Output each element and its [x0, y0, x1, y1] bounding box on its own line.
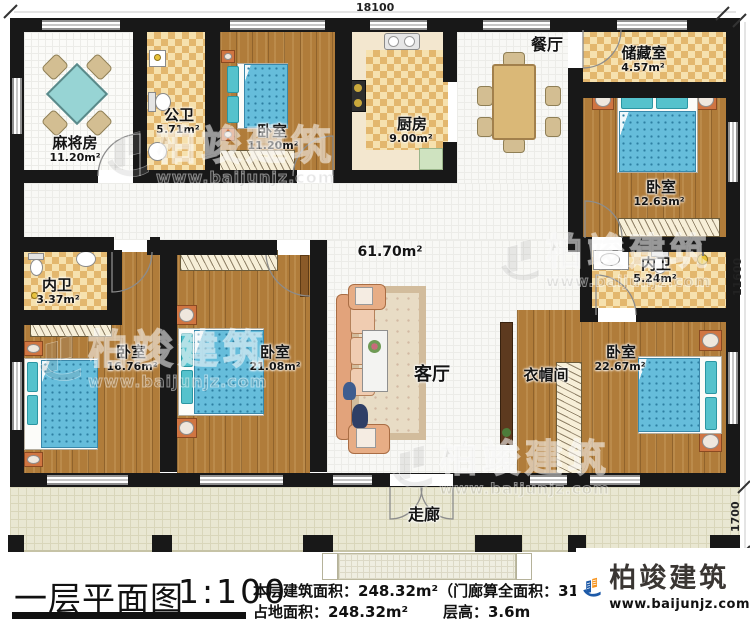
- window: [47, 475, 128, 485]
- label-bath-w: 内卫: [42, 278, 72, 293]
- bed-pillow: [705, 361, 717, 394]
- toilet-icon: [30, 259, 43, 276]
- dining-chair: [545, 117, 561, 137]
- company-logo: 柏竣建筑 www.baijunjz.com: [576, 548, 750, 627]
- wall: [310, 240, 327, 472]
- wardrobe-icon: [618, 218, 720, 237]
- counter-board: [419, 148, 443, 170]
- nightstand: [699, 431, 722, 452]
- nightstand: [699, 330, 722, 351]
- dining-chair: [477, 117, 493, 137]
- stats-building-area: 本层建筑面积：248.32m²（门廊算全面积：31.1: [253, 580, 583, 601]
- label-bath-w-area: 3.37m²: [36, 294, 79, 305]
- floor-plan-page: 麻将房 11.20m² 公卫 5.71m² 卧室 11.20m² 厨房 9.00…: [0, 0, 750, 627]
- stove-burner: [354, 84, 362, 92]
- wall: [592, 308, 598, 322]
- wall: [580, 237, 592, 322]
- window: [483, 20, 550, 30]
- window: [728, 352, 738, 424]
- window: [12, 78, 22, 134]
- entry-door-gap: [390, 474, 453, 486]
- wall: [568, 18, 583, 28]
- window: [530, 475, 567, 485]
- wall: [205, 18, 220, 183]
- window: [200, 475, 283, 485]
- living-band-floor: [24, 183, 568, 240]
- sofa-corner-cushion: [356, 428, 376, 448]
- wall: [10, 310, 122, 325]
- nightstand: [221, 50, 235, 63]
- bed-pillow: [181, 333, 193, 367]
- window: [728, 122, 738, 182]
- label-bedroom-s-area: 21.08m²: [249, 361, 300, 372]
- label-bedroom-sw-area: 16.76m²: [106, 361, 157, 372]
- entry-steps: [338, 553, 516, 580]
- entry-step-side: [322, 553, 338, 580]
- kitchen-sink-basin: [388, 36, 399, 47]
- label-bedroom-n-area: 11.20m²: [247, 140, 298, 151]
- door-leaf: [300, 255, 309, 297]
- wall: [333, 170, 455, 183]
- wall: [147, 240, 277, 255]
- nightstand: [176, 418, 197, 438]
- plant-icon: [502, 428, 511, 437]
- wall: [622, 237, 740, 252]
- window: [42, 20, 120, 30]
- bed-duvet: [244, 64, 288, 128]
- wardrobe-icon: [215, 150, 295, 171]
- label-bedroom-s: 卧室: [260, 345, 290, 360]
- label-public-bath-area: 5.71m²: [156, 124, 199, 135]
- sink-icon: [600, 253, 620, 266]
- label-bedroom-se-area: 22.67m²: [594, 361, 645, 372]
- entry-step-side: [516, 553, 532, 580]
- stove-burner: [354, 99, 362, 107]
- washer-knob-icon: [154, 54, 161, 61]
- label-bedroom-ne: 卧室: [646, 180, 676, 195]
- dining-chair: [503, 138, 525, 153]
- label-bedroom-sw: 卧室: [116, 345, 146, 360]
- label-bath-e: 内卫: [641, 257, 671, 272]
- stats-land-area: 占地面积：248.32m²: [253, 601, 408, 622]
- person-figure-icon: [343, 382, 356, 400]
- bed-duvet: [619, 111, 696, 172]
- label-bedroom-se: 卧室: [606, 345, 636, 360]
- dining-table: [492, 64, 536, 140]
- label-living-area-value: 61.70m²: [357, 245, 422, 259]
- kitchen-sink-basin: [404, 36, 415, 47]
- wall: [160, 240, 177, 472]
- porch-column: [8, 535, 24, 552]
- bed-pillow: [227, 96, 239, 123]
- dimension-porch: 1700: [729, 501, 742, 532]
- sofa-corner-cushion: [355, 287, 373, 305]
- porch-column: [475, 535, 522, 552]
- bed-pillow: [27, 362, 38, 392]
- label-kitchen-area: 9.00m²: [389, 133, 432, 144]
- bed-pillow: [27, 395, 38, 425]
- company-logo-icon: [582, 557, 601, 619]
- label-living: 客厅: [414, 366, 450, 384]
- company-logo-name: 柏竣建筑: [609, 565, 750, 592]
- sink-icon: [148, 142, 167, 161]
- nightstand: [24, 341, 43, 356]
- nightstand: [24, 452, 43, 467]
- dimension-right: 11600: [731, 258, 744, 296]
- porch-floor: [10, 487, 740, 552]
- nightstand: [176, 305, 197, 325]
- label-bedroom-ne-area: 12.63m²: [633, 196, 684, 207]
- bed-duvet: [638, 358, 700, 432]
- label-corridor: 走廊: [408, 507, 440, 523]
- label-kitchen: 厨房: [397, 117, 427, 132]
- table-flowers-icon: [368, 340, 381, 353]
- label-cloakroom: 衣帽间: [523, 368, 568, 383]
- label-storage-area: 4.57m²: [621, 62, 664, 73]
- window: [590, 475, 640, 485]
- wall: [107, 250, 122, 310]
- bed-pillow: [705, 397, 717, 430]
- wall: [568, 68, 583, 252]
- dining-chair: [545, 86, 561, 106]
- label-bath-e-area: 5.24m²: [633, 273, 676, 284]
- window: [230, 20, 325, 30]
- bed-pillow: [227, 66, 239, 93]
- label-storage: 储藏室: [621, 46, 666, 61]
- label-bedroom-n: 卧室: [257, 124, 287, 139]
- wall: [10, 237, 114, 252]
- nightstand: [221, 128, 235, 141]
- label-public-bath: 公卫: [164, 108, 194, 123]
- wall: [335, 18, 352, 183]
- window: [12, 362, 22, 430]
- window: [333, 475, 372, 485]
- dining-chair: [477, 86, 493, 106]
- wall: [443, 18, 457, 82]
- label-mahjong: 麻将房: [52, 136, 97, 151]
- person-figure-icon: [352, 404, 368, 428]
- bed-duvet: [41, 360, 98, 448]
- window: [617, 20, 687, 30]
- window: [370, 20, 427, 30]
- dimension-top: 18100: [356, 1, 394, 14]
- title-underline: [12, 612, 246, 619]
- porch-column: [303, 535, 333, 552]
- wall: [583, 82, 740, 98]
- label-mahjong-area: 11.20m²: [49, 152, 100, 163]
- wall: [10, 170, 98, 183]
- wall: [133, 18, 147, 183]
- porch-column: [152, 535, 172, 552]
- stats-floor-height: 层高：3.6m: [443, 601, 530, 622]
- wall: [636, 308, 740, 322]
- tv-cabinet: [500, 322, 513, 445]
- wall: [140, 170, 297, 183]
- label-dining: 餐厅: [531, 37, 563, 53]
- sink-icon: [76, 251, 96, 267]
- company-logo-url: www.baijunjz.com: [609, 598, 750, 611]
- bed-pillow: [181, 370, 193, 404]
